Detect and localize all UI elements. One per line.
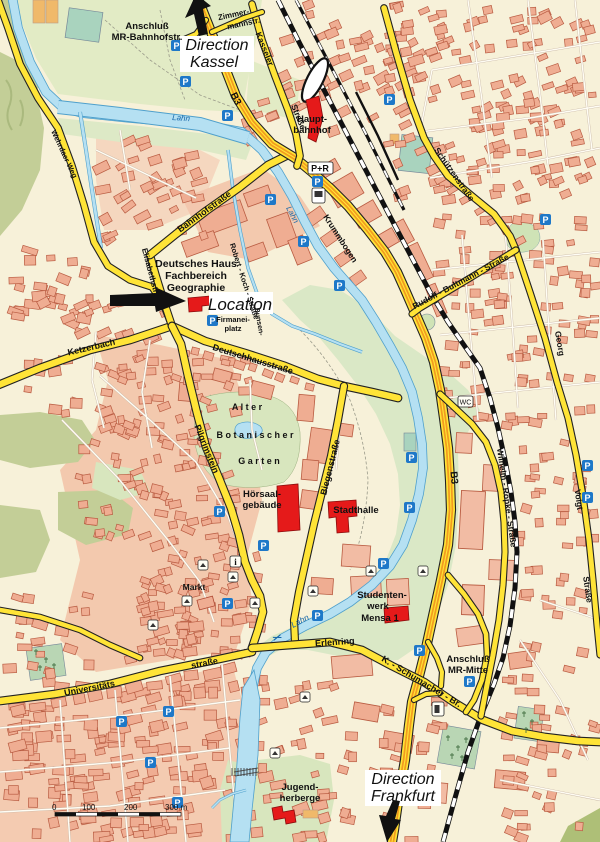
- svg-text:P: P: [380, 559, 386, 569]
- svg-text:G a r t e n: G a r t e n: [238, 456, 280, 466]
- svg-text:P: P: [118, 717, 124, 727]
- svg-text:P: P: [300, 237, 306, 247]
- svg-text:Deutsches Haus: Deutsches Haus: [155, 258, 237, 270]
- svg-text:P: P: [336, 281, 342, 291]
- svg-text:P: P: [216, 507, 222, 517]
- svg-text:P: P: [584, 493, 590, 503]
- svg-text:0: 0: [52, 803, 57, 812]
- svg-text:P: P: [209, 316, 215, 326]
- svg-text:P: P: [182, 77, 188, 87]
- svg-text:Anschluß: Anschluß: [446, 654, 489, 665]
- svg-text:100: 100: [82, 803, 96, 812]
- svg-text:Hörsaal-: Hörsaal-: [243, 489, 281, 500]
- svg-text:P: P: [416, 646, 422, 656]
- svg-text:P: P: [147, 758, 153, 768]
- svg-text:Geographie: Geographie: [167, 282, 226, 294]
- svg-text:P: P: [386, 95, 392, 105]
- svg-text:Firmanei-: Firmanei-: [216, 315, 250, 324]
- svg-text:werk: werk: [366, 601, 389, 612]
- svg-text:Fachbereich: Fachbereich: [165, 270, 227, 282]
- svg-text:Location: Location: [208, 295, 272, 314]
- svg-text:WC: WC: [460, 400, 472, 407]
- svg-text:Direction: Direction: [185, 37, 248, 54]
- svg-text:platz: platz: [224, 324, 241, 333]
- svg-text:Kassel: Kassel: [190, 54, 238, 71]
- svg-text:Haupt-: Haupt-: [297, 114, 327, 125]
- svg-text:Anschluß: Anschluß: [125, 21, 168, 32]
- svg-text:P: P: [406, 503, 412, 513]
- svg-text:P: P: [542, 215, 548, 225]
- svg-text:P: P: [165, 707, 171, 717]
- svg-text:P: P: [260, 541, 266, 551]
- svg-text:P: P: [584, 461, 590, 471]
- svg-text:bahnhof: bahnhof: [293, 125, 331, 136]
- svg-text:P: P: [466, 677, 472, 687]
- svg-text:A l t e r: A l t e r: [232, 402, 263, 412]
- svg-text:MR-Mitte: MR-Mitte: [448, 665, 488, 676]
- svg-text:Stadthalle: Stadthalle: [333, 505, 378, 516]
- svg-text:Lahn: Lahn: [172, 113, 191, 123]
- svg-text:200: 200: [124, 803, 138, 812]
- svg-text:Markt: Markt: [183, 582, 206, 592]
- svg-text:gebäude: gebäude: [242, 500, 281, 511]
- svg-text:P: P: [314, 611, 320, 621]
- svg-text:P: P: [224, 599, 230, 609]
- svg-text:Studenten-: Studenten-: [357, 590, 407, 601]
- svg-text:herberge: herberge: [280, 793, 321, 804]
- svg-text:Mensa 1: Mensa 1: [361, 613, 399, 624]
- svg-text:P+R: P+R: [311, 164, 329, 174]
- svg-text:B o t a n i s c h e r: B o t a n i s c h e r: [216, 430, 294, 440]
- svg-text:P: P: [224, 111, 230, 121]
- svg-text:P: P: [314, 177, 320, 187]
- svg-text:Direction: Direction: [371, 771, 434, 788]
- svg-text:Frankfurt: Frankfurt: [371, 788, 436, 805]
- svg-text:P: P: [267, 195, 273, 205]
- svg-text:P: P: [408, 453, 414, 463]
- svg-text:B3: B3: [447, 471, 459, 485]
- svg-text:300 m: 300 m: [165, 803, 188, 812]
- svg-text:Jugend-: Jugend-: [282, 782, 319, 793]
- svg-text:MR-Bahnhofstr.: MR-Bahnhofstr.: [112, 32, 183, 43]
